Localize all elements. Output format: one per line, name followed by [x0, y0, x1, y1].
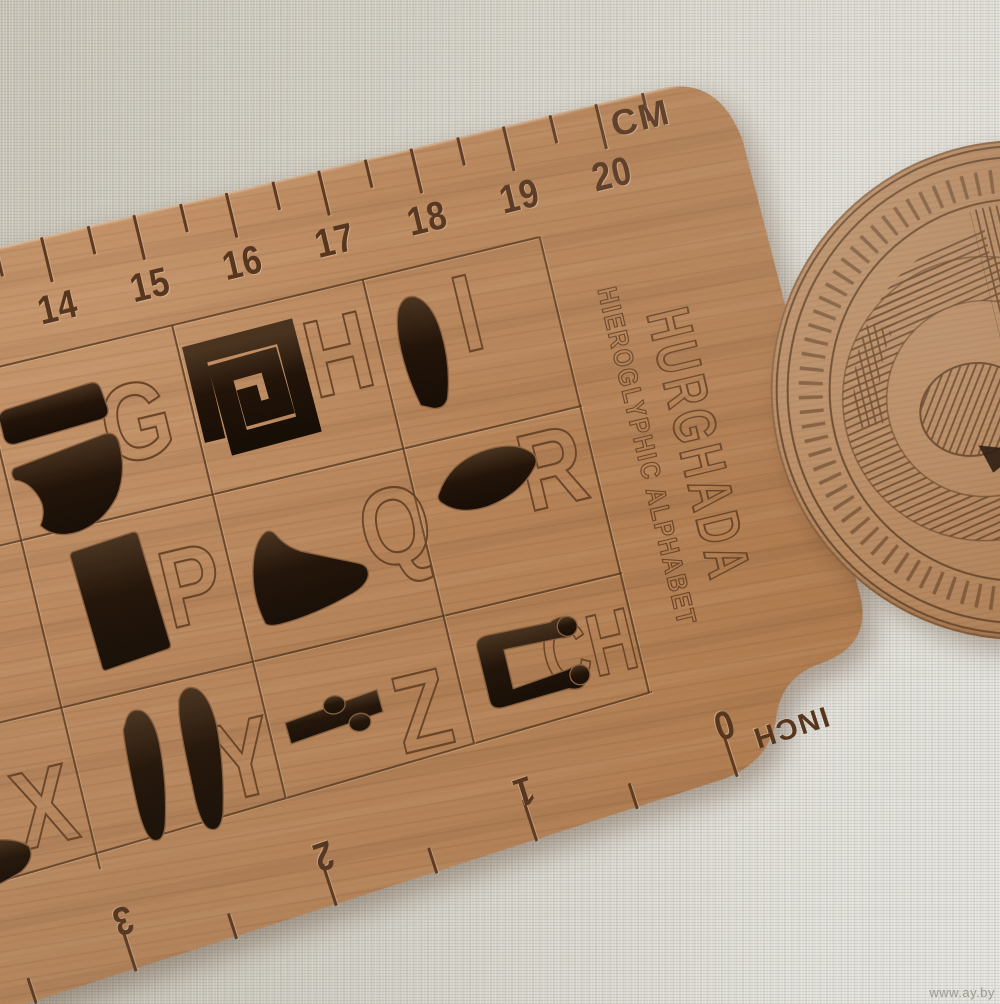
hieroglyphic-ruler-board: 14 15 16 17 18 19 20 CM 0 1 2 3 INCH — [0, 0, 1000, 1004]
handle-disc-shadow — [0, 0, 1000, 1004]
cell-letter-ch: CH — [533, 594, 645, 702]
watermark: www.ay.by — [929, 985, 995, 1000]
photo-scene: 14 15 16 17 18 19 20 CM 0 1 2 3 INCH — [0, 0, 1000, 1004]
